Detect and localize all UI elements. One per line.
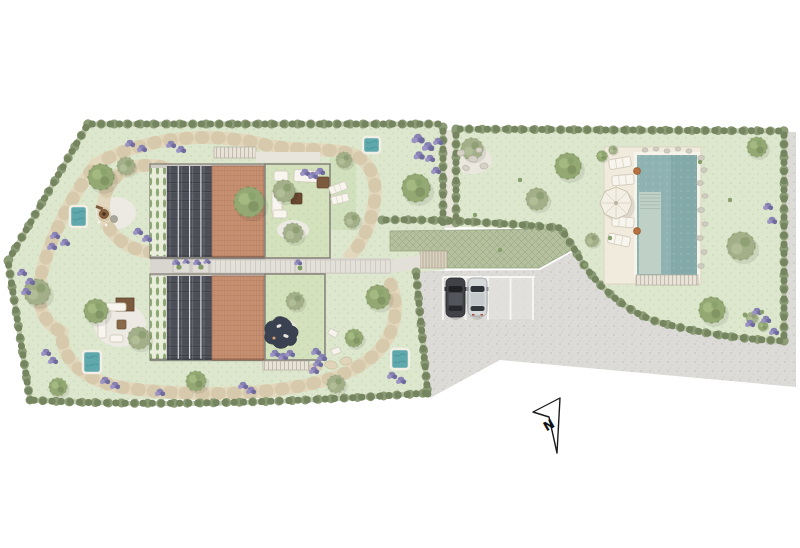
- pool-area: [600, 147, 708, 285]
- car-silver: [467, 278, 489, 320]
- parking-area: [443, 277, 535, 320]
- house-a-green-facade: [150, 168, 166, 256]
- side-table: [634, 168, 641, 175]
- entrance-canopy-a: [214, 147, 256, 158]
- house-b-green-facade: [150, 276, 166, 359]
- garden-table: [117, 320, 126, 329]
- courtyard-b: [265, 274, 325, 360]
- plunge-pool-3: [391, 349, 409, 369]
- car-dark: [445, 278, 467, 320]
- north-arrow: N: [533, 398, 560, 453]
- outdoor-kitchen: [317, 177, 329, 188]
- plunge-pool-1: [70, 206, 87, 227]
- parasol: [600, 187, 632, 219]
- plunge-pool-4: [363, 137, 380, 153]
- house-b-eave-shadow: [150, 358, 265, 362]
- site-plan: N: [0, 0, 800, 548]
- stone-table: [111, 216, 118, 223]
- entrance-path-a: [256, 152, 320, 162]
- garden-steps: [420, 251, 447, 268]
- side-table: [634, 228, 641, 235]
- pond-detail: [272, 336, 275, 339]
- plunge-pool-2: [83, 351, 101, 373]
- house-b-tile-roof: [212, 276, 264, 360]
- courtyard-b-texture: [265, 274, 325, 360]
- pool-shelf: [639, 192, 661, 274]
- pool-pergola: [636, 275, 698, 285]
- entrance-canopy-b: [263, 361, 309, 370]
